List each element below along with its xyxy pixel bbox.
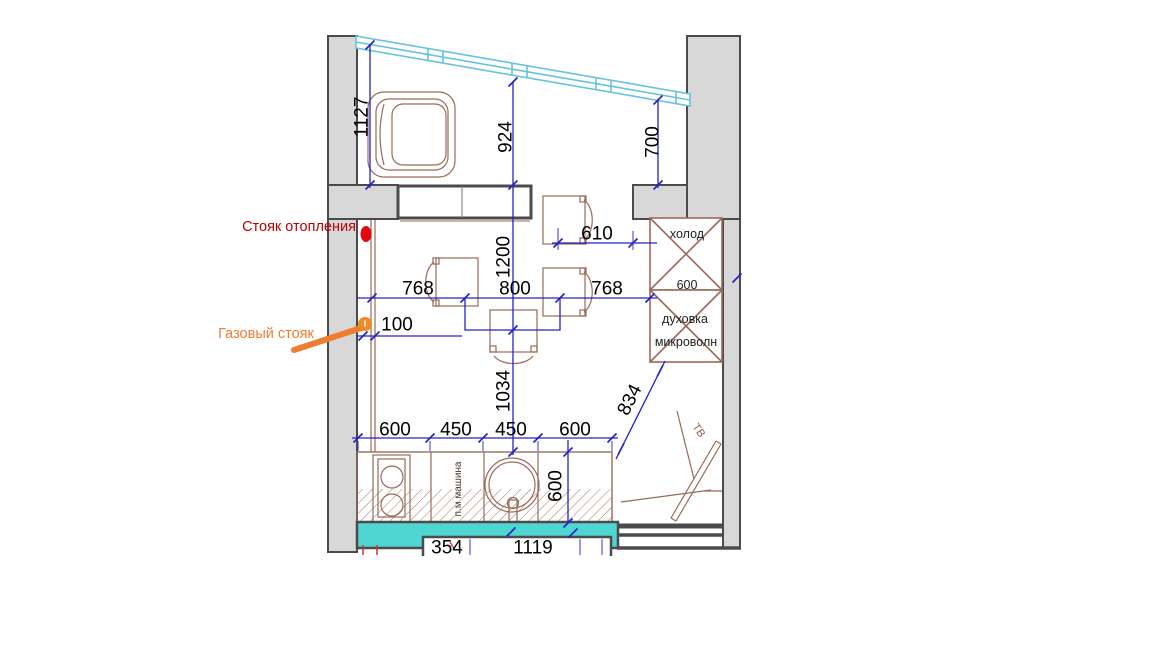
fridge-size-label: 600 (677, 279, 698, 292)
dim-window-right: 700 (644, 126, 663, 158)
right-wall-bottom (723, 219, 740, 548)
gas-riser-label: Газовый стояк (218, 327, 314, 342)
left-wall-ledge (328, 185, 398, 219)
tv (621, 411, 722, 521)
heating-riser-label: Стояк отопления (242, 220, 356, 235)
microwave-label: микроволн (655, 336, 717, 349)
furniture (357, 92, 722, 523)
dishwasher-label: п.м машина (454, 462, 464, 517)
floor-plan-screenshot: Стояк отопления Газовый стояк 1127 924 7… (0, 0, 1152, 648)
dim-counter-seg2: 450 (440, 421, 472, 440)
dim-counter-seg3: 450 (495, 421, 527, 440)
fridge-label: холод (670, 228, 704, 241)
kitchen-counter (357, 452, 612, 523)
dim-doorway: 610 (581, 225, 613, 244)
dim-bottom-seg2: 1119 (513, 539, 552, 557)
sideboard (398, 186, 531, 221)
right-wall-ledge (633, 185, 687, 219)
dim-window-left: 1127 (353, 97, 372, 138)
dim-left-to-table: 768 (402, 280, 434, 299)
dim-table-width: 800 (499, 280, 531, 299)
dim-window-mid: 924 (497, 121, 516, 153)
dim-bottom-seg1: 354 (431, 539, 463, 557)
dim-counter-seg1: 600 (379, 421, 411, 440)
heating-riser-dot (361, 226, 372, 242)
dim-table-to-counter: 1034 (495, 370, 514, 412)
window (356, 36, 690, 106)
oven-microwave-box (650, 290, 722, 362)
floor-plan: Стояк отопления Газовый стояк 1127 924 7… (0, 0, 1152, 556)
dim-counter-depth: 600 (547, 470, 566, 502)
dim-gas-offset: 100 (381, 316, 413, 335)
right-wall-top (687, 36, 740, 219)
dim-counter-seg4: 600 (559, 421, 591, 440)
oven-label: духовка (662, 313, 708, 326)
floor-plan-svg (0, 0, 1152, 556)
chair-right (543, 268, 592, 316)
dim-table-length: 1200 (495, 236, 514, 278)
bottom-right-wall-lines (602, 526, 741, 548)
dim-table-to-fridge: 768 (591, 280, 623, 299)
armchair (368, 92, 455, 177)
